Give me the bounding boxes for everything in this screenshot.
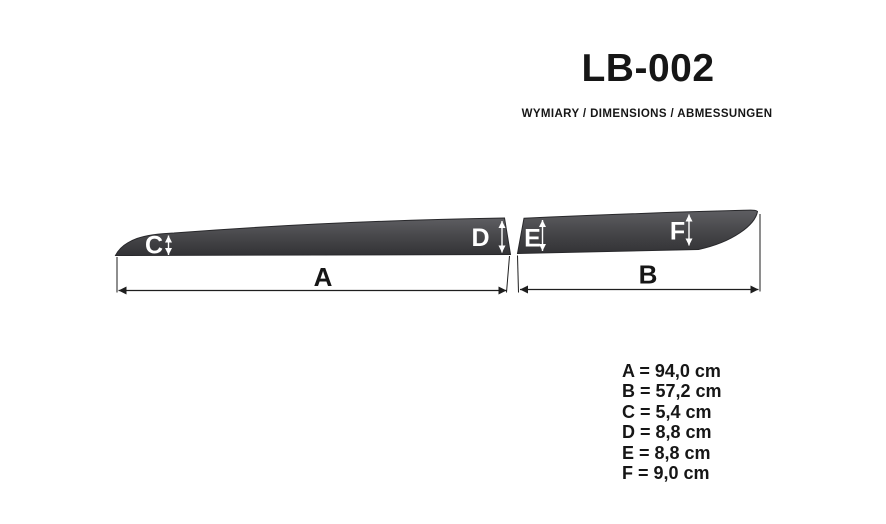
label-c: C: [145, 232, 163, 260]
left-molding-shape: [116, 218, 511, 256]
dimension-list-item-f: F = 9,0 cm: [622, 463, 722, 483]
extension-line-a-right: [507, 256, 510, 293]
diagram-page: LB-002 WYMIARY / DIMENSIONS / ABMESSUNGE…: [0, 0, 886, 524]
label-a: A: [314, 262, 333, 292]
dimension-list: A = 94,0 cm B = 57,2 cm C = 5,4 cm D = 8…: [622, 361, 722, 483]
label-f: F: [670, 218, 685, 246]
extension-line-b-left: [518, 256, 519, 293]
dimension-list-item-b: B = 57,2 cm: [622, 381, 722, 401]
label-d: D: [471, 224, 489, 252]
dimension-list-item-e: E = 8,8 cm: [622, 443, 722, 463]
dimension-list-item-a: A = 94,0 cm: [622, 361, 722, 381]
label-b: B: [639, 260, 658, 290]
dimension-diagram: C D E F A B: [0, 0, 886, 524]
right-molding-shape: [518, 210, 758, 253]
dimension-list-item-d: D = 8,8 cm: [622, 422, 722, 442]
dimension-list-item-c: C = 5,4 cm: [622, 402, 722, 422]
label-e: E: [524, 225, 541, 253]
